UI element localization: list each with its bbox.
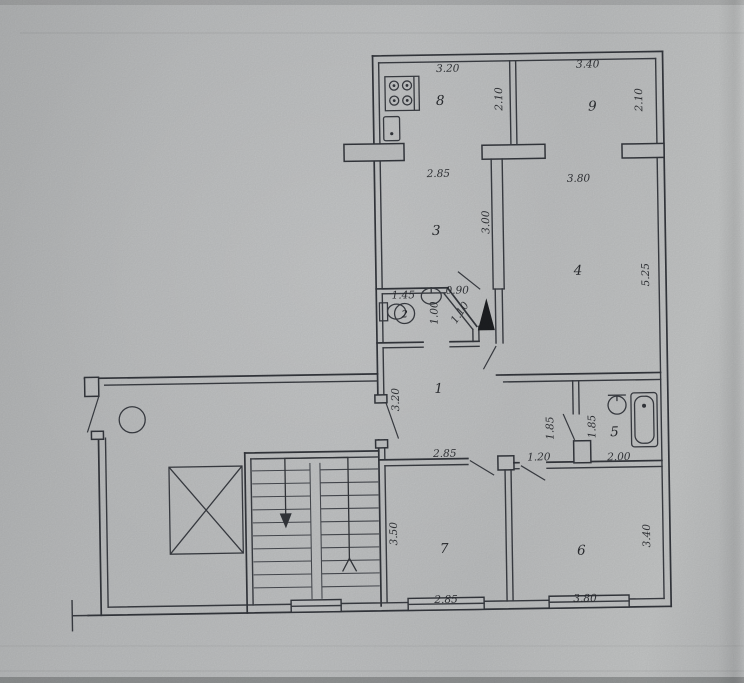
- floor-plan-svg: 8 9 3 4 1 5 7 6 2 3.20 3.40 2.10 2.10 2.…: [0, 0, 744, 683]
- scan-artifacts: [0, 0, 744, 683]
- scanned-floor-plan-page: 8 9 3 4 1 5 7 6 2 3.20 3.40 2.10 2.10 2.…: [0, 0, 744, 683]
